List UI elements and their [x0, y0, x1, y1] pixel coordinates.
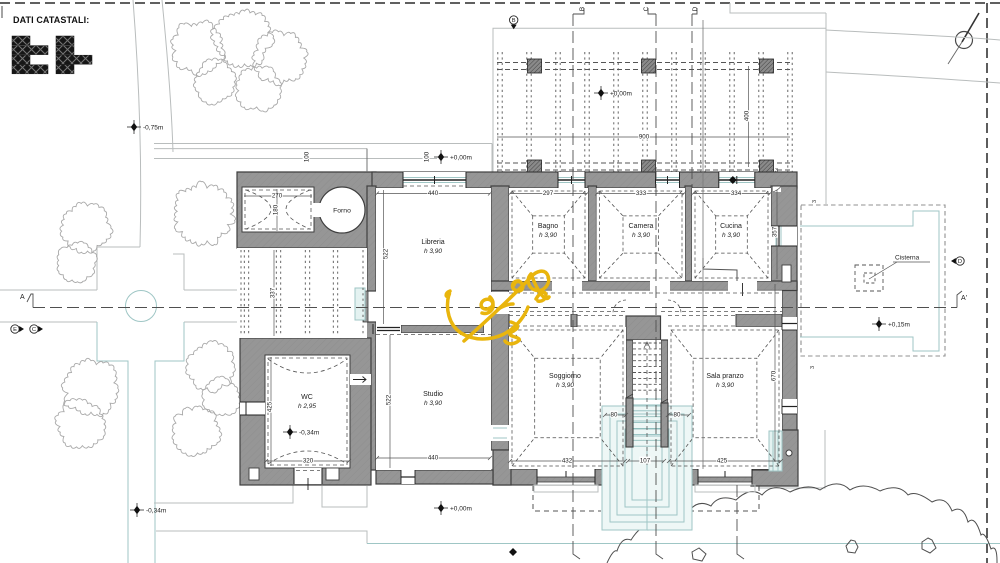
svg-text:+0,00m: +0,00m [610, 90, 632, 97]
svg-text:440: 440 [428, 454, 439, 461]
svg-text:E: E [13, 327, 17, 333]
svg-text:100: 100 [423, 151, 430, 162]
svg-text:B: B [579, 7, 586, 11]
svg-text:3: 3 [810, 366, 816, 369]
svg-text:Cucina: Cucina [720, 223, 742, 230]
svg-text:440: 440 [428, 190, 439, 197]
svg-text:-0,34m: -0,34m [299, 429, 319, 436]
svg-text:107: 107 [640, 457, 651, 464]
svg-text:D: D [958, 259, 962, 265]
svg-text:337: 337 [269, 287, 276, 298]
svg-text:425: 425 [717, 457, 728, 464]
svg-text:333: 333 [636, 190, 647, 197]
svg-text:Sala pranzo: Sala pranzo [706, 373, 743, 380]
svg-text:3: 3 [775, 168, 778, 174]
svg-text:A: A [20, 294, 25, 301]
svg-text:-0,75m: -0,75m [143, 124, 163, 131]
svg-text:C: C [32, 327, 36, 333]
svg-text:334: 334 [731, 190, 742, 197]
svg-text:h 3,90: h 3,90 [424, 248, 442, 255]
svg-text:432: 432 [562, 457, 573, 464]
svg-text:+0,00m: +0,00m [450, 154, 472, 161]
svg-text:WC: WC [301, 394, 313, 401]
svg-text:3: 3 [812, 200, 818, 203]
svg-text:Studio: Studio [423, 391, 443, 398]
svg-text:Libreria: Libreria [421, 239, 444, 246]
svg-text:+0,15m: +0,15m [888, 321, 910, 328]
svg-text:Soggiorno: Soggiorno [549, 373, 581, 380]
svg-text:B: B [512, 18, 516, 24]
svg-text:425: 425 [266, 401, 273, 412]
svg-text:522: 522 [382, 248, 389, 259]
svg-text:+0,00m: +0,00m [450, 505, 472, 512]
svg-text:Cisterna: Cisterna [895, 255, 920, 262]
svg-text:80: 80 [611, 411, 618, 418]
svg-text:Camera: Camera [629, 223, 654, 230]
svg-text:h 3,90: h 3,90 [539, 232, 557, 239]
svg-text:A': A' [961, 295, 967, 302]
svg-text:h 3,90: h 3,90 [424, 400, 442, 407]
svg-text:400: 400 [743, 110, 750, 121]
svg-text:297: 297 [543, 190, 554, 197]
svg-text:670: 670 [770, 370, 777, 381]
svg-text:80: 80 [674, 411, 681, 418]
svg-text:180: 180 [272, 204, 279, 215]
svg-text:522: 522 [385, 394, 392, 405]
svg-text:D: D [692, 6, 699, 11]
svg-text:357: 357 [771, 226, 778, 237]
svg-text:h 3,90: h 3,90 [632, 232, 650, 239]
svg-text:Forno: Forno [333, 208, 351, 215]
svg-text:-0,34m: -0,34m [146, 507, 166, 514]
svg-text:320: 320 [303, 457, 314, 464]
svg-text:C: C [643, 6, 650, 11]
svg-text:900: 900 [639, 133, 650, 140]
svg-text:h 3,90: h 3,90 [716, 382, 734, 389]
svg-text:h 3,90: h 3,90 [556, 382, 574, 389]
svg-text:h 3,90: h 3,90 [722, 232, 740, 239]
svg-text:Bagno: Bagno [538, 223, 558, 230]
svg-text:DATI CATASTALI:: DATI CATASTALI: [13, 15, 89, 25]
svg-text:100: 100 [303, 151, 310, 162]
svg-text:h 2,95: h 2,95 [298, 403, 316, 410]
